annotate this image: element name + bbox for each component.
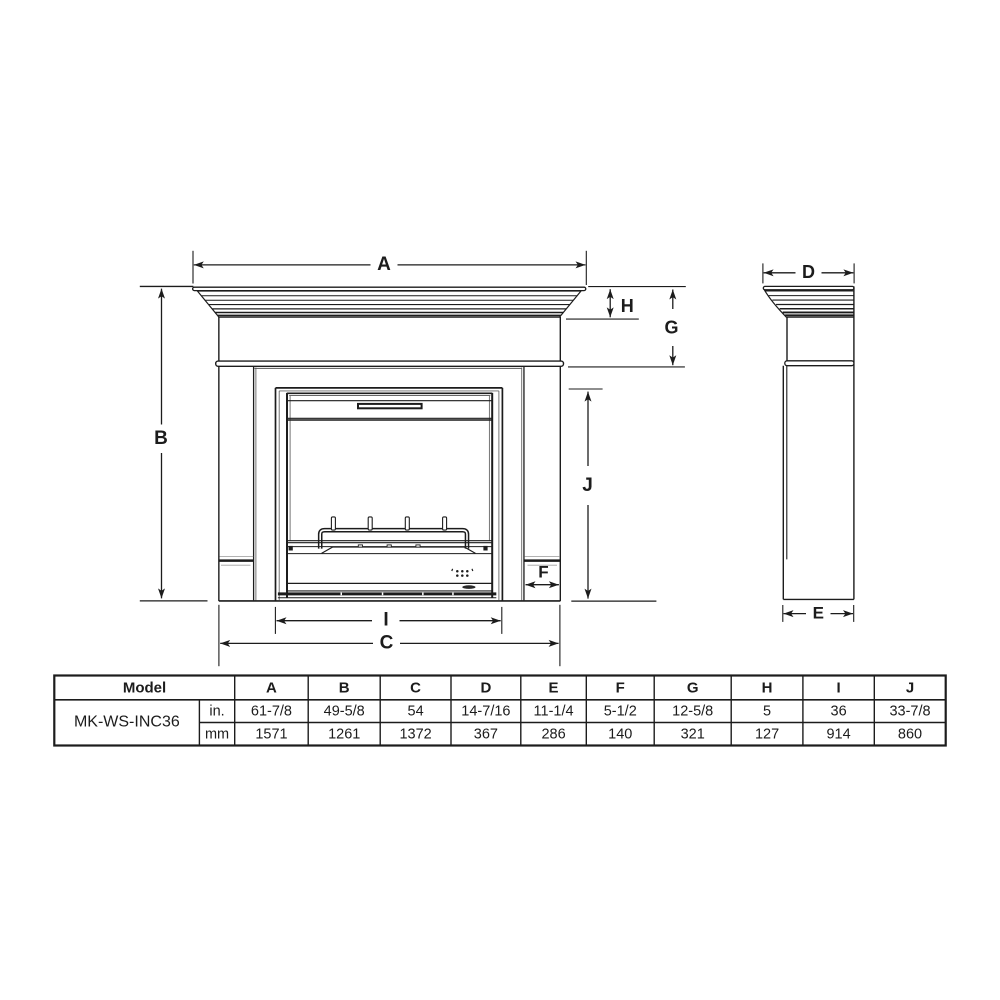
svg-text:H: H	[621, 296, 634, 316]
svg-text:I: I	[383, 610, 388, 631]
svg-text:G: G	[664, 318, 678, 338]
svg-text:12-5/8: 12-5/8	[672, 704, 713, 720]
svg-text:1372: 1372	[399, 727, 431, 743]
svg-text:1261: 1261	[328, 727, 360, 743]
svg-text:C: C	[410, 680, 421, 697]
svg-text:54: 54	[408, 704, 424, 720]
svg-text:J: J	[582, 475, 593, 496]
svg-text:H: H	[762, 680, 773, 697]
svg-text:860: 860	[898, 727, 922, 743]
svg-text:49-5/8: 49-5/8	[324, 704, 365, 720]
svg-text:B: B	[154, 428, 168, 449]
svg-text:F: F	[538, 562, 548, 581]
svg-text:I: I	[837, 680, 841, 697]
svg-text:MK-WS-INC36: MK-WS-INC36	[74, 713, 180, 730]
svg-text:5: 5	[763, 704, 771, 720]
svg-text:Model: Model	[123, 680, 166, 697]
svg-text:E: E	[813, 604, 824, 623]
svg-text:5-1/2: 5-1/2	[604, 704, 637, 720]
svg-text:A: A	[377, 254, 391, 275]
svg-text:1571: 1571	[255, 727, 287, 743]
svg-text:D: D	[802, 262, 815, 282]
svg-text:A: A	[266, 680, 277, 697]
svg-text:33-7/8: 33-7/8	[889, 704, 930, 720]
svg-text:mm: mm	[205, 727, 229, 743]
svg-text:in.: in.	[209, 704, 224, 720]
svg-text:B: B	[339, 680, 350, 697]
svg-text:321: 321	[681, 727, 705, 743]
svg-text:367: 367	[474, 727, 498, 743]
svg-text:61-7/8: 61-7/8	[251, 704, 292, 720]
svg-text:914: 914	[826, 727, 850, 743]
svg-text:J: J	[906, 680, 914, 697]
svg-text:G: G	[687, 680, 699, 697]
svg-text:11-1/4: 11-1/4	[534, 704, 574, 720]
svg-text:286: 286	[541, 727, 565, 743]
svg-text:14-7/16: 14-7/16	[461, 704, 510, 720]
svg-text:140: 140	[608, 727, 632, 743]
svg-text:C: C	[380, 632, 394, 653]
svg-text:36: 36	[831, 704, 847, 720]
svg-text:127: 127	[755, 727, 779, 743]
svg-text:F: F	[616, 680, 625, 697]
svg-text:E: E	[549, 680, 559, 697]
svg-text:D: D	[480, 680, 491, 697]
